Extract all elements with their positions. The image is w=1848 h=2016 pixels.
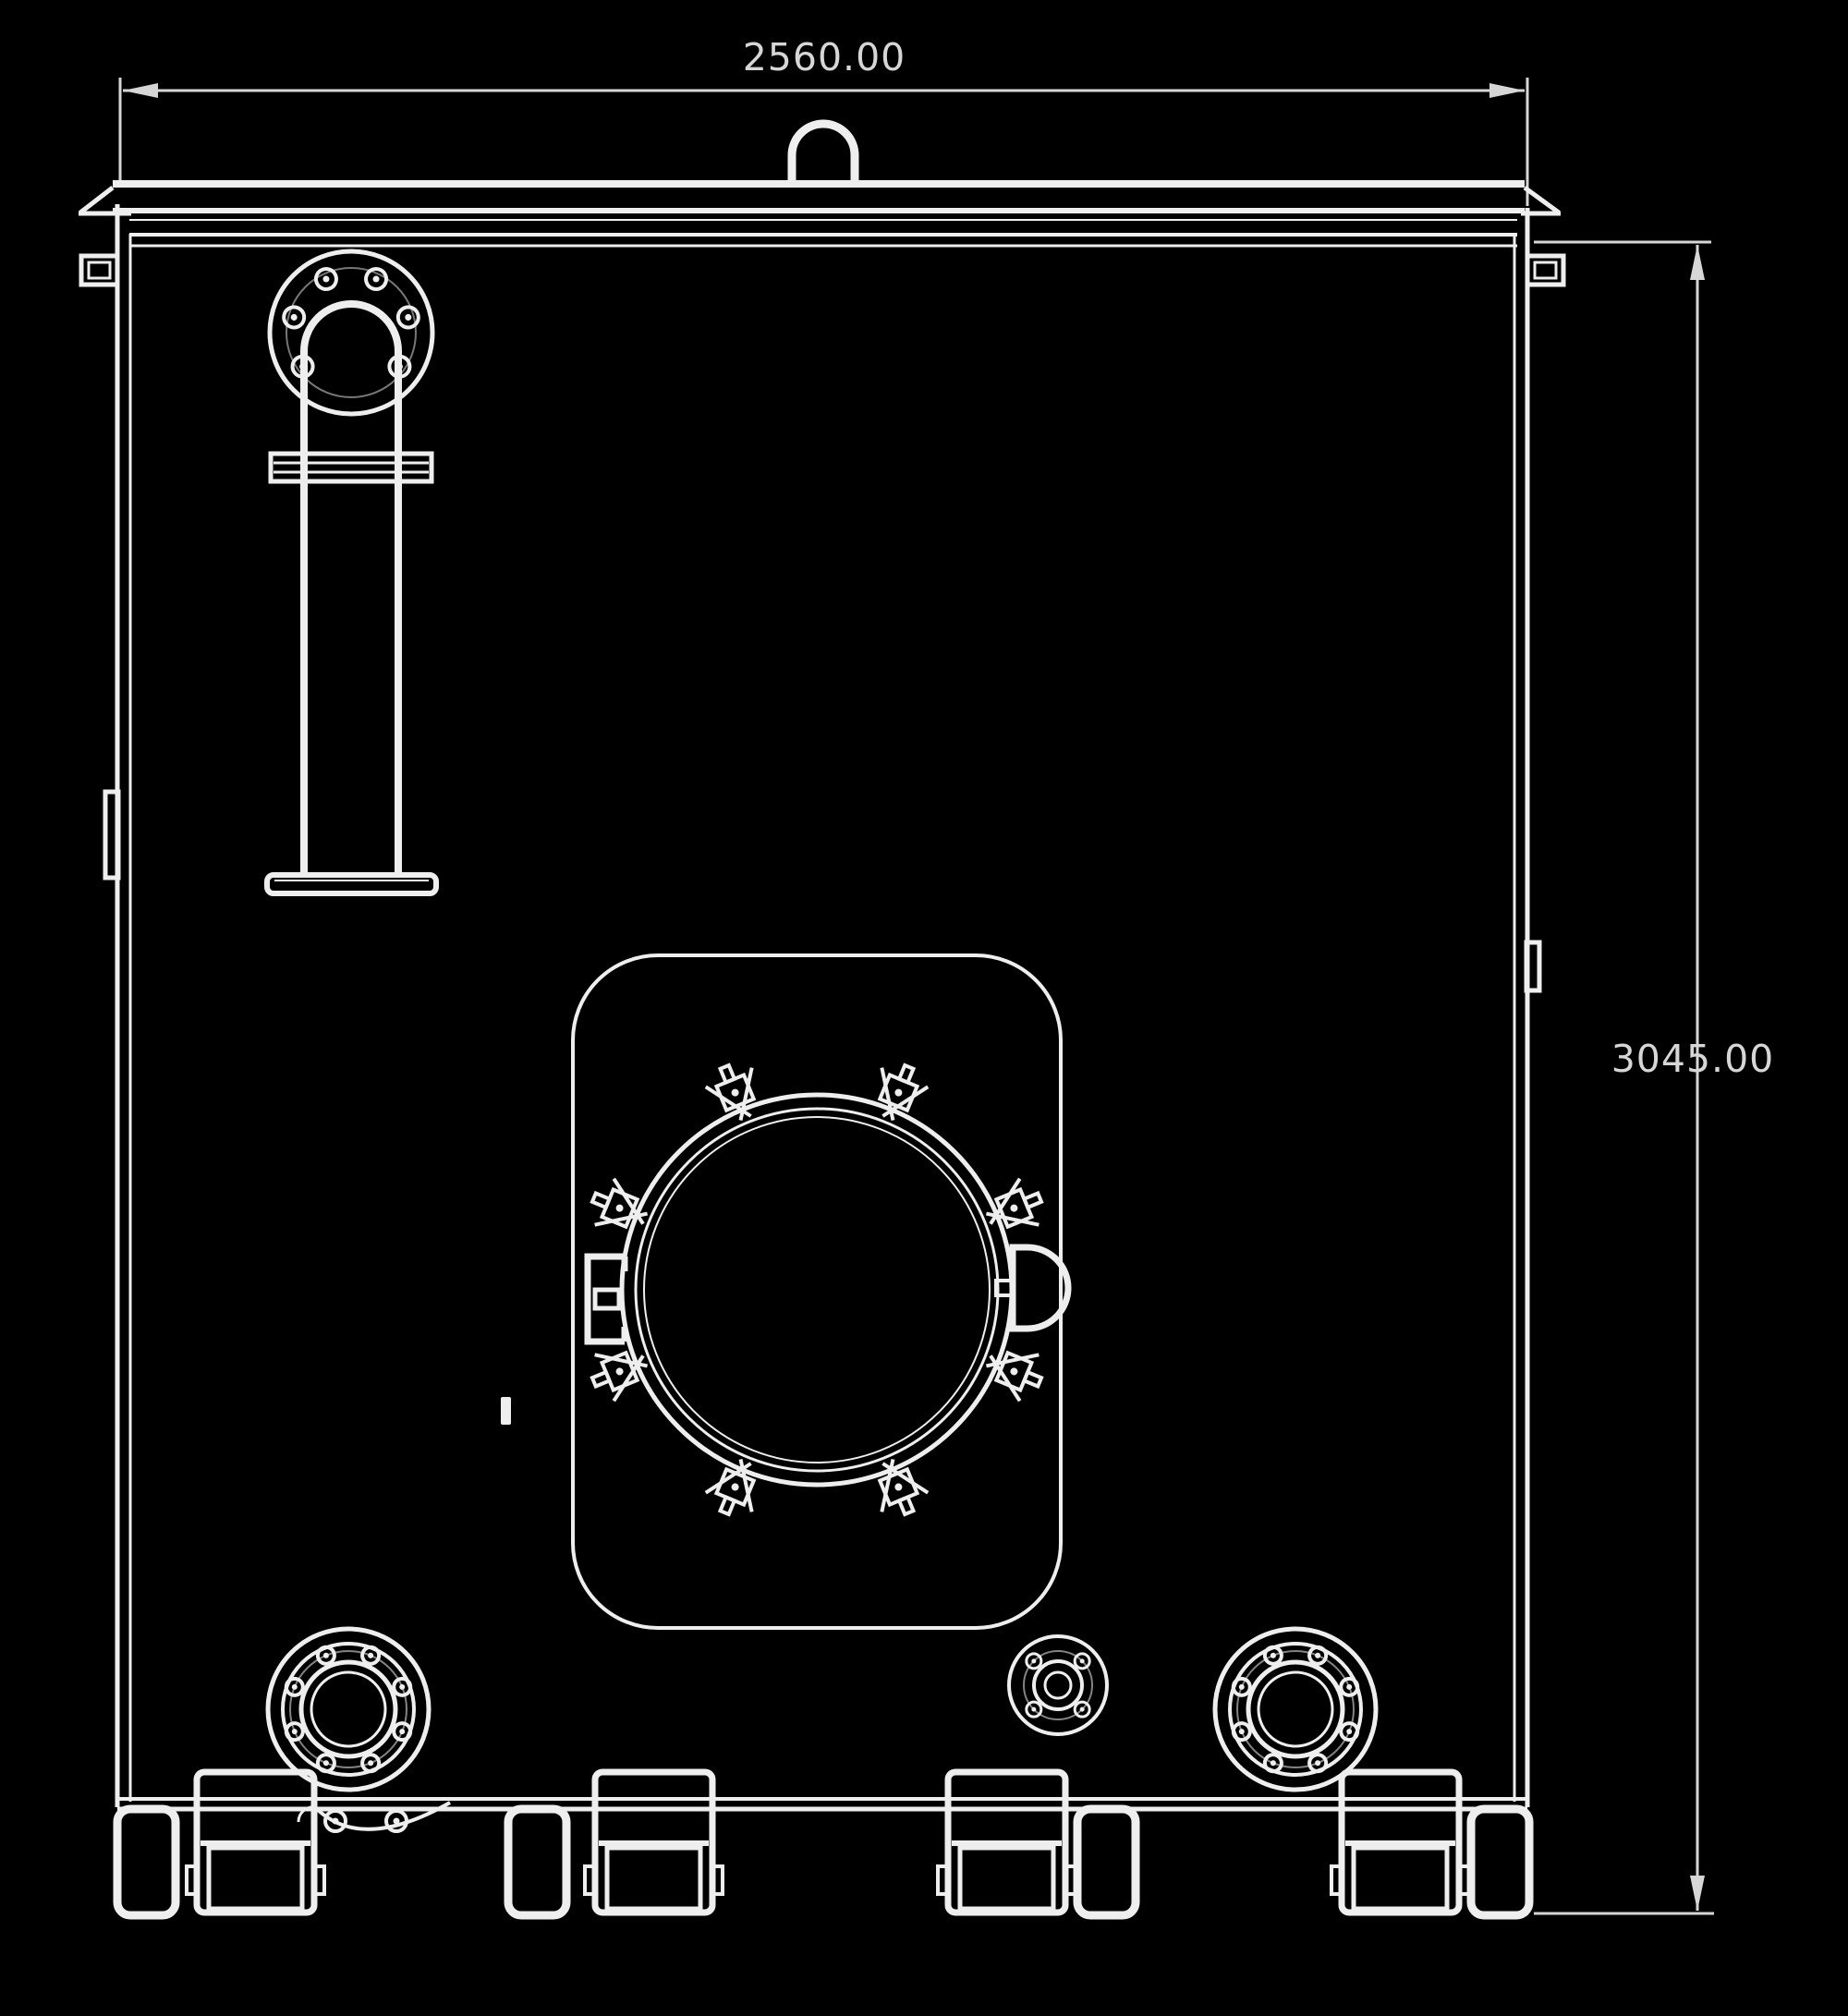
wall-lug-top-right <box>1527 256 1563 285</box>
caster-housing-3 <box>938 1772 1076 1913</box>
arrow-left-icon <box>123 83 158 98</box>
bottom-flange-right <box>1215 1629 1376 1790</box>
caster-wheel-3 <box>1077 1809 1136 1915</box>
manhole-door <box>501 955 1068 1628</box>
bottom-flange-left <box>268 1629 429 1790</box>
bottom-flange-small <box>1009 1636 1107 1734</box>
pipe-collar <box>271 454 432 481</box>
caster-housing-1 <box>187 1772 324 1913</box>
manhole-handle-left <box>588 1257 625 1342</box>
vent-pipe-flange <box>270 251 432 414</box>
wall-lug-left-mid <box>105 792 118 878</box>
arrow-up-icon <box>1690 245 1705 280</box>
tank-lid <box>79 124 1561 246</box>
cad-canvas: 2560.00 3045.00 <box>0 0 1848 2016</box>
door-panel <box>573 955 1061 1628</box>
pipe-base-plate <box>267 875 436 893</box>
weld-tick <box>501 1397 511 1425</box>
lid-left-flare <box>80 188 113 213</box>
lid-right-flare <box>1525 188 1559 213</box>
manhole-handle-right <box>996 1247 1068 1329</box>
arrow-right-icon <box>1489 83 1525 98</box>
arrow-down-icon <box>1690 1876 1705 1911</box>
vent-pipe <box>304 304 398 877</box>
caster-wheel-2 <box>508 1809 566 1915</box>
caster-wheel-4 <box>1471 1809 1529 1915</box>
manhole-ring <box>622 1095 1012 1485</box>
wall-lug-top-left <box>81 256 117 285</box>
wall-lug-right-mid <box>1526 942 1539 990</box>
height-dimension-label: 3045.00 <box>1611 1037 1775 1081</box>
caster-housing-4 <box>1331 1772 1469 1913</box>
tank-bottom-edge <box>117 1799 1527 1809</box>
caster-housing-2 <box>585 1772 723 1913</box>
vent-pipe-assembly <box>267 251 436 893</box>
lifting-lug <box>792 124 855 184</box>
tank-front-elevation-drawing: 2560.00 3045.00 <box>0 0 1848 2016</box>
caster-wheel-1 <box>117 1809 176 1915</box>
width-dimension-label: 2560.00 <box>743 35 906 79</box>
height-dimension: 3045.00 <box>1534 242 1774 1913</box>
